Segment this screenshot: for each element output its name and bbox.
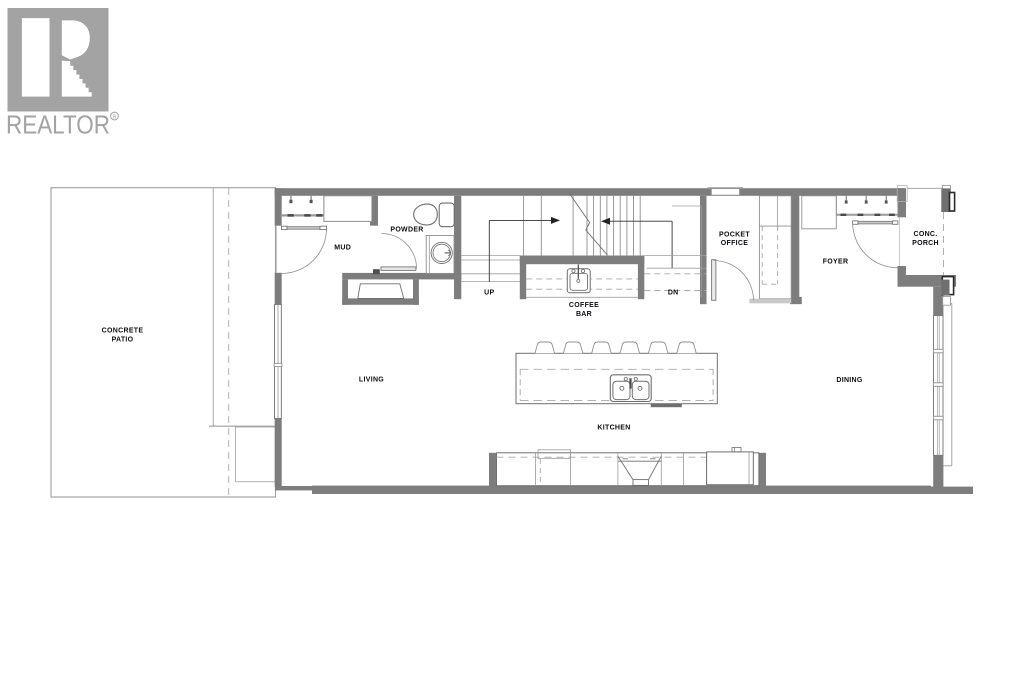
svg-text:KITCHEN: KITCHEN — [597, 425, 630, 432]
svg-text:MUD: MUD — [334, 245, 351, 252]
svg-text:BAR: BAR — [576, 311, 592, 318]
svg-text:PORCH: PORCH — [912, 240, 939, 247]
svg-text:COFFEE: COFFEE — [569, 302, 599, 309]
svg-text:UP: UP — [484, 289, 494, 296]
svg-text:FOYER: FOYER — [823, 258, 849, 265]
svg-text:DINING: DINING — [836, 377, 863, 384]
svg-text:LIVING: LIVING — [359, 377, 384, 384]
svg-text:DN: DN — [668, 289, 679, 296]
svg-text:CONCRETE: CONCRETE — [102, 328, 144, 335]
svg-text:POCKET: POCKET — [719, 232, 750, 239]
svg-text:POWDER: POWDER — [390, 227, 423, 234]
svg-text:REALTOR: REALTOR — [6, 112, 110, 140]
svg-text:OFFICE: OFFICE — [721, 240, 748, 247]
svg-text:PATIO: PATIO — [112, 337, 134, 344]
svg-text:R: R — [113, 115, 117, 121]
svg-text:CONC.: CONC. — [913, 231, 937, 238]
